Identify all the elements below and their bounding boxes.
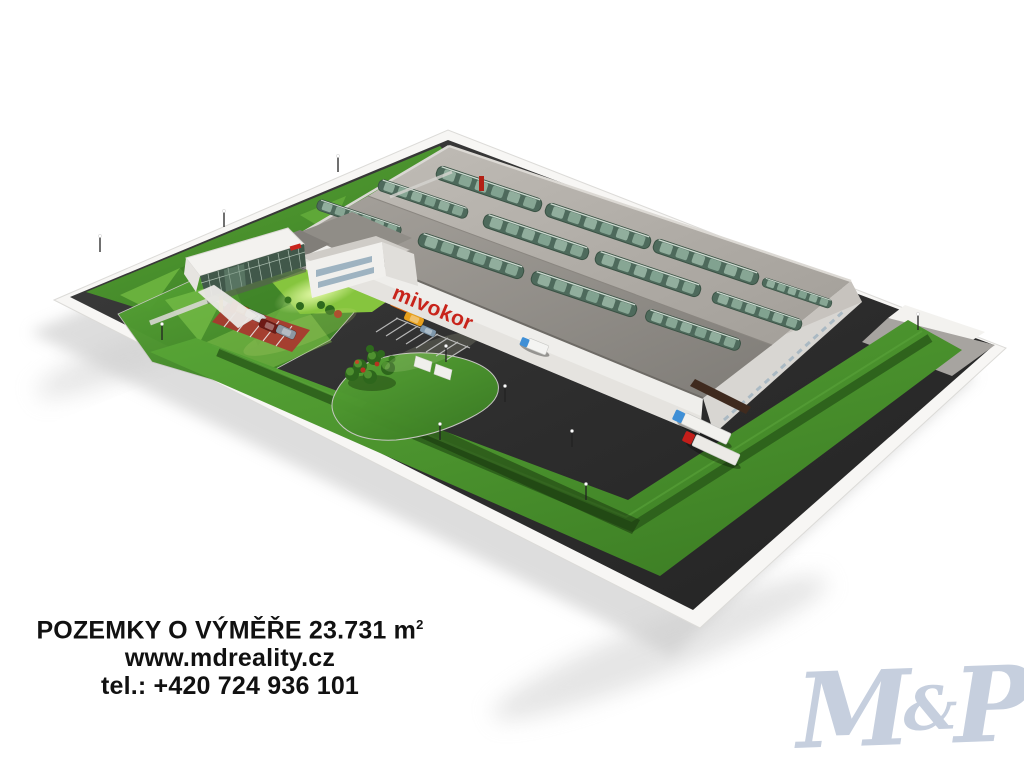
- mp-watermark: M&P: [794, 642, 1024, 768]
- property-advert-image: mivokor: [0, 0, 1024, 768]
- watermark-p: P: [951, 642, 1024, 767]
- area-superscript: 2: [416, 617, 423, 632]
- website-line: www.mdreality.cz: [28, 644, 432, 672]
- roof-chimney: [479, 176, 484, 191]
- watermark-m: M: [794, 646, 905, 768]
- phone-line: tel.: +420 724 936 101: [28, 672, 432, 700]
- area-line: POZEMKY O VÝMĚŘE 23.731 m2: [28, 611, 432, 644]
- footer-contact-block: POZEMKY O VÝMĚŘE 23.731 m2 www.mdreality…: [28, 611, 432, 700]
- area-text: POZEMKY O VÝMĚŘE 23.731 m: [36, 616, 416, 644]
- watermark-ampersand: &: [902, 673, 955, 745]
